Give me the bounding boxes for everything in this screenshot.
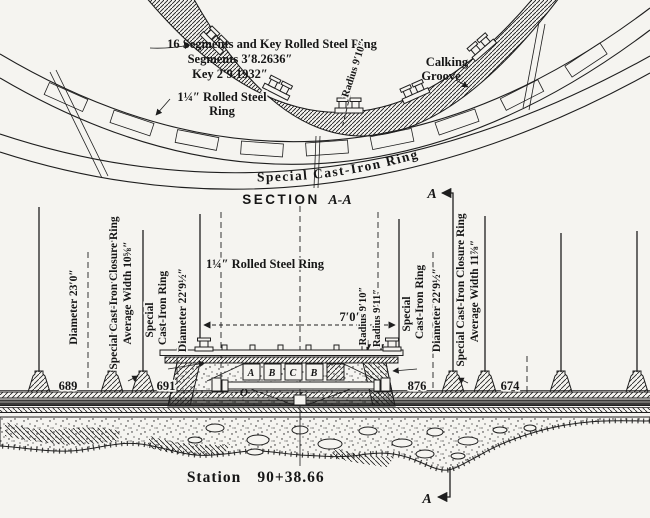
calking-label-line2: Groove bbox=[421, 69, 461, 83]
left-ring-line2: Cast-Iron Ring bbox=[157, 271, 169, 345]
steel-ring-label-line2: Ring bbox=[209, 104, 235, 118]
tie-bar bbox=[228, 382, 374, 389]
section-steel-ring-label: 1¼″ Rolled Steel Ring bbox=[206, 257, 325, 271]
ring-note-line1: 16 Segments and Key Rolled Steel Ring bbox=[167, 37, 377, 51]
stake-number: 876 bbox=[408, 379, 427, 393]
tie-bar-anchor-left bbox=[212, 378, 221, 391]
right-closure-ring-line1: Special Cast-Iron Closure Ring bbox=[455, 213, 467, 366]
left-closure-ring-line2: Average Width 10⅝″ bbox=[122, 241, 134, 344]
cut-letter-top: A bbox=[426, 187, 436, 202]
tunnel-section-drawing: 16 Segments and Key Rolled Steel Ring Se… bbox=[0, 0, 650, 518]
stake-number: 689 bbox=[59, 379, 78, 393]
stake-number: 674 bbox=[501, 379, 521, 393]
right-ring-line1: Special bbox=[401, 296, 413, 331]
pocket-letter: A bbox=[247, 368, 255, 379]
section-view bbox=[0, 193, 650, 497]
right-closure-ring-line2: Average Width 11⅞″ bbox=[469, 240, 481, 343]
left-closure-ring-line1: Special Cast-Iron Closure Ring bbox=[108, 216, 120, 369]
right-ring-line2: Cast-Iron Ring bbox=[414, 265, 426, 339]
radius-outer-label: Radius 9′11″ bbox=[372, 289, 383, 347]
ring-segment-panels bbox=[44, 43, 607, 157]
station-word: Station bbox=[187, 469, 241, 486]
ring-note-line2: Segments 3′8.2636″ bbox=[188, 52, 293, 66]
right-diameter-inner-label: Diameter 22′9½″ bbox=[431, 268, 443, 352]
engineering-drawing-page: 16 Segments and Key Rolled Steel Ring Se… bbox=[0, 0, 650, 518]
pocket-letter: B bbox=[268, 368, 276, 379]
cast-iron-ring-curved-label: Special Cast-Iron Ring bbox=[257, 146, 420, 184]
tie-bar-anchor-right bbox=[381, 378, 390, 391]
section-cut-line-top bbox=[442, 193, 453, 372]
calking-label-line1: Calking bbox=[426, 55, 469, 69]
pocket-letter: C bbox=[290, 368, 297, 379]
foundation-cradle bbox=[160, 338, 403, 406]
left-ring-line1: Special bbox=[144, 302, 156, 337]
station-value: 90+38.66 bbox=[257, 469, 324, 486]
excavated-ground bbox=[0, 417, 650, 470]
steel-ring-label-line1: 1¼″ Rolled Steel bbox=[177, 90, 267, 104]
left-diameter-outer-label: Diameter 23′0″ bbox=[68, 269, 80, 344]
radius-inner-label: Radius 9′10″ bbox=[358, 287, 369, 346]
left-diameter-inner-label: Diameter 22′9½″ bbox=[177, 268, 189, 352]
top-view-ring-plan bbox=[0, 0, 650, 189]
cut-letter-bottom: A bbox=[421, 492, 431, 507]
ring-note-line3: Key 2′9.1932″ bbox=[192, 67, 268, 81]
center-notch bbox=[294, 395, 306, 405]
ring-flange bbox=[165, 357, 398, 363]
origin-label: O bbox=[240, 387, 248, 399]
section-title-cut: A-A bbox=[327, 193, 351, 208]
plate-bolts bbox=[222, 345, 367, 350]
pocket-letter: B bbox=[310, 368, 318, 379]
section-title-word: SECTION bbox=[242, 192, 320, 207]
steel-ring-leader bbox=[156, 99, 170, 115]
right-ring-leader bbox=[393, 369, 417, 371]
stake-number: 691 bbox=[157, 379, 176, 393]
